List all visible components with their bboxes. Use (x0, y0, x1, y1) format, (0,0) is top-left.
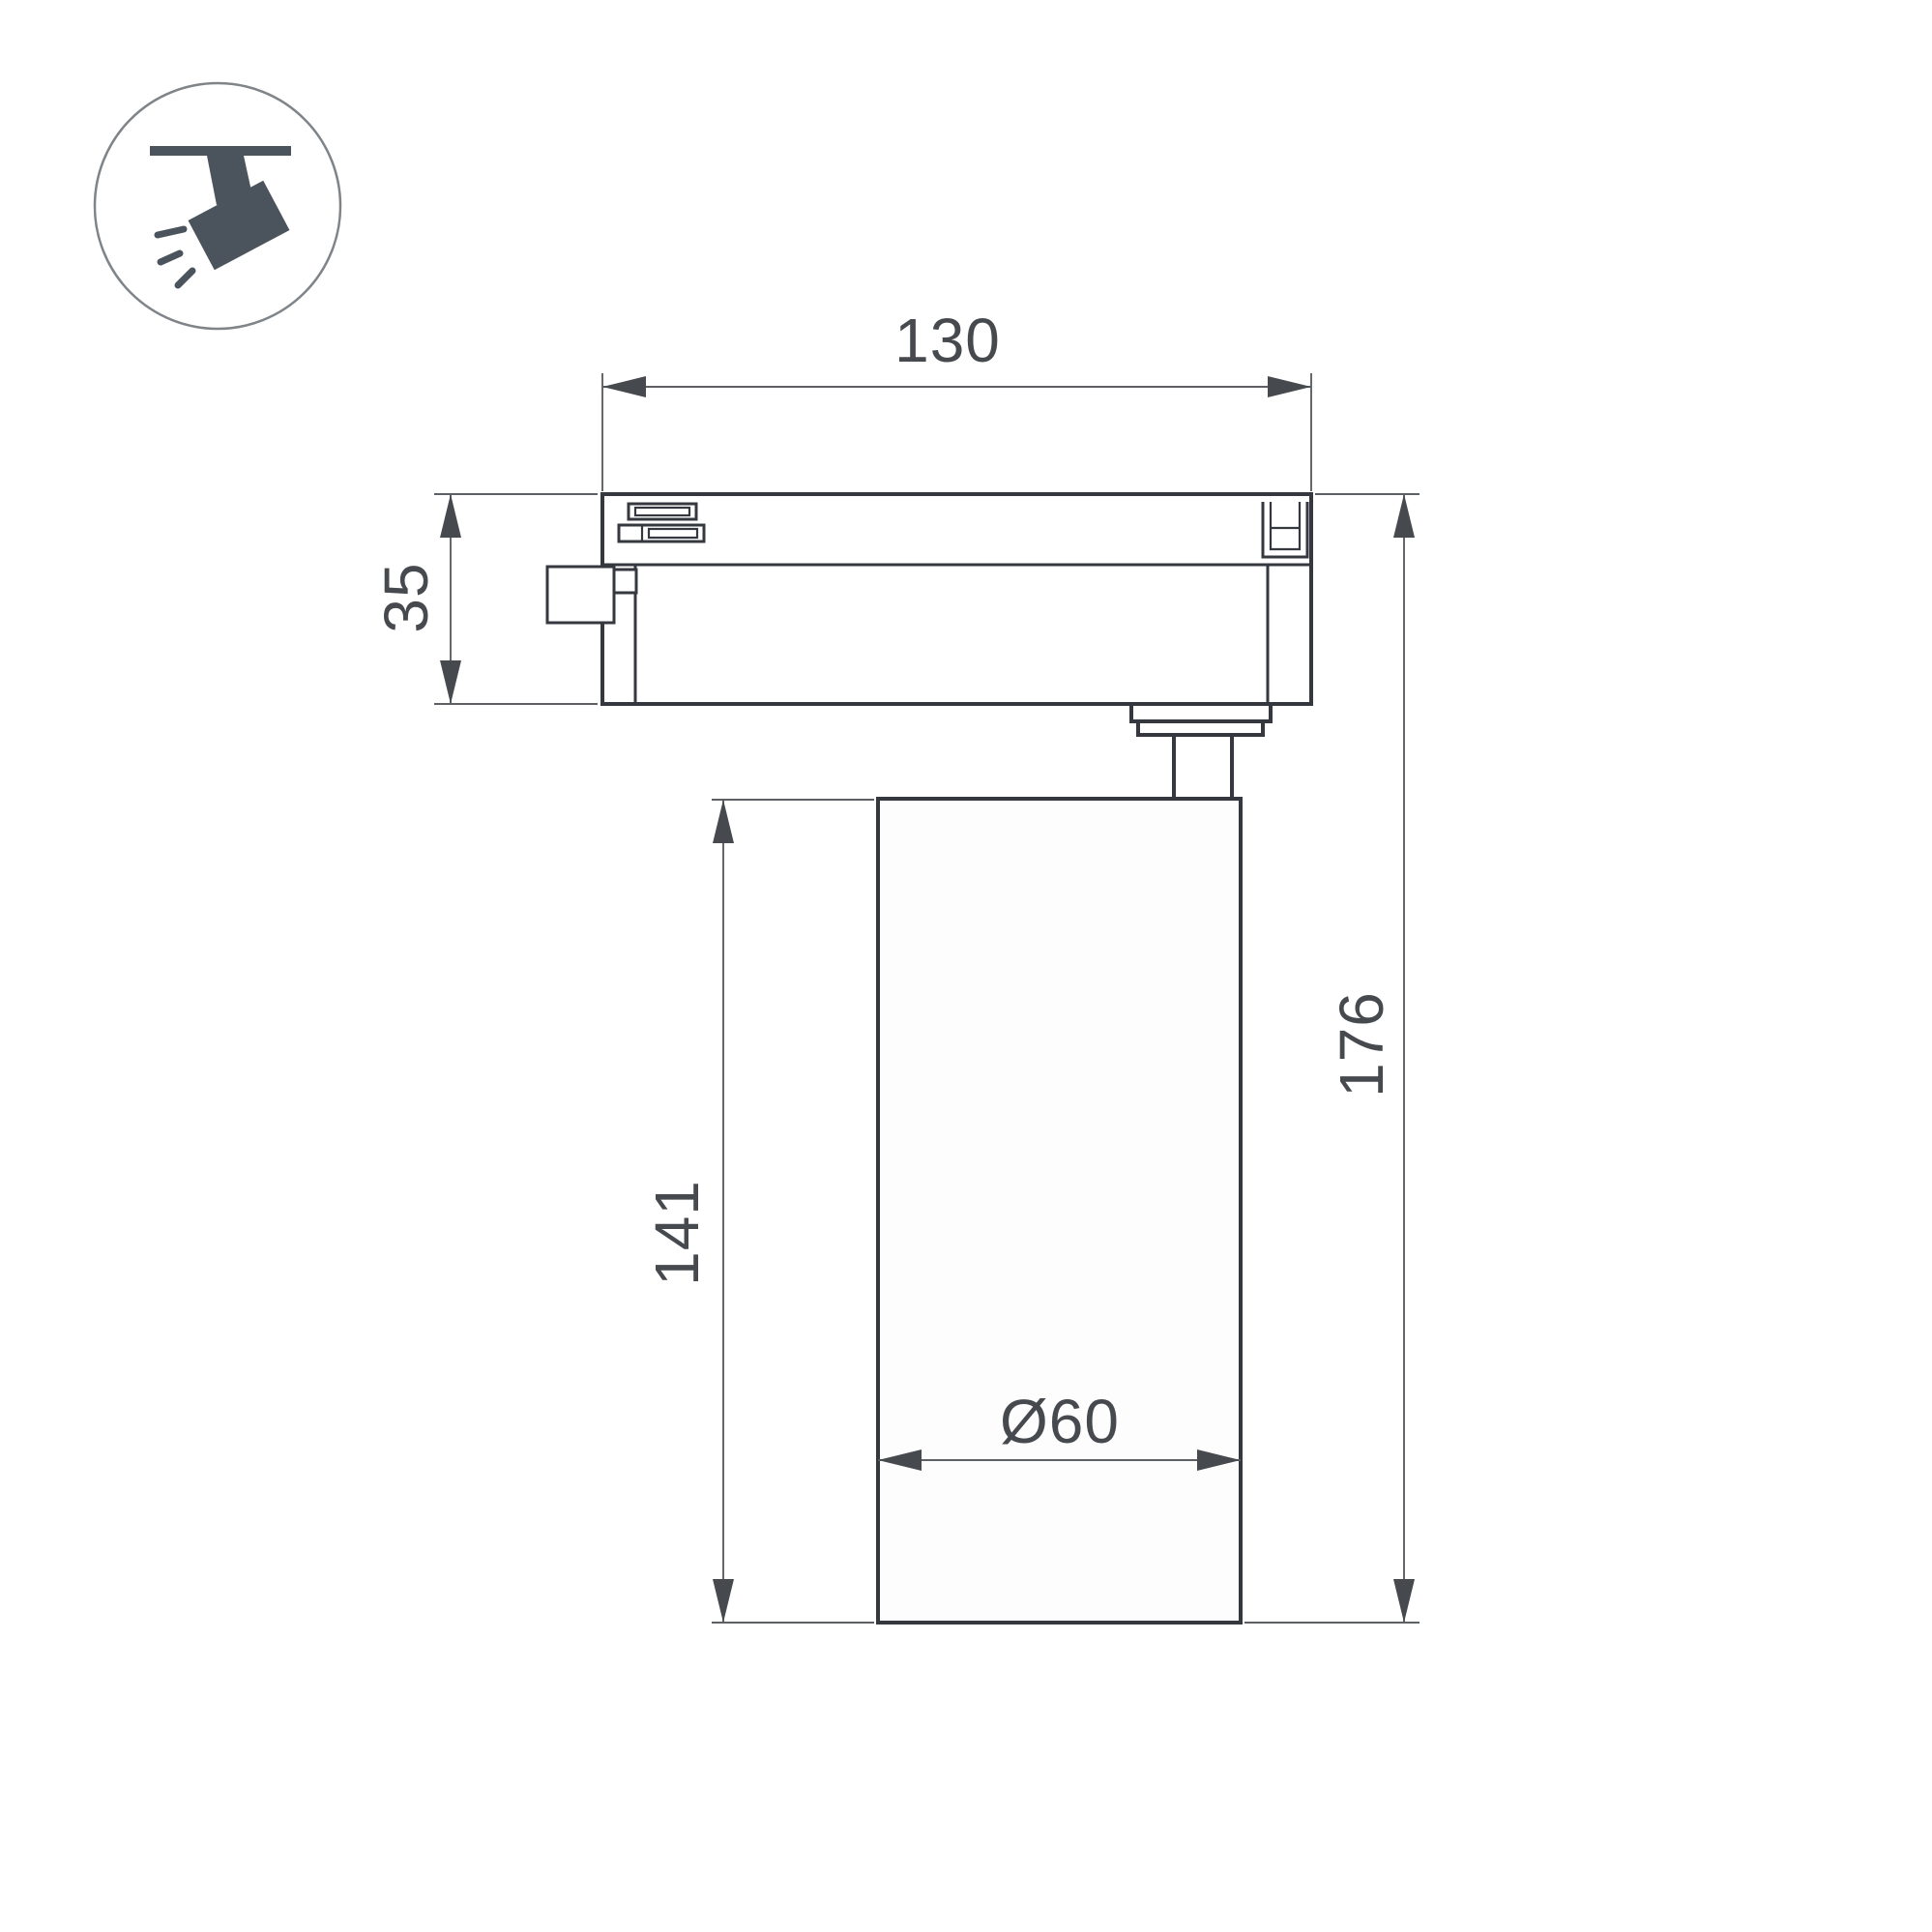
arrowhead-down (1393, 1579, 1415, 1623)
lock-lever-step (614, 570, 636, 593)
arrowhead-down (713, 1579, 734, 1623)
arrowhead-down (440, 660, 461, 704)
dim-lamp-height-label: 141 (642, 1180, 712, 1286)
dim-adapter-height-label: 35 (371, 562, 441, 632)
dim-lamp-diameter-label: Ø60 (1000, 1387, 1120, 1456)
dim-total-height-label: 176 (1327, 991, 1396, 1098)
mounting-stem (1131, 704, 1271, 799)
track-adapter-outline (547, 494, 1311, 704)
arrowhead-left (602, 376, 646, 397)
lock-lever (547, 567, 614, 623)
arrowhead-up (440, 494, 461, 538)
dimension-drawing-canvas: 130 35 141 176 Ø60 (0, 0, 1932, 1932)
arrowhead-right (1268, 376, 1311, 397)
lamp-body (878, 799, 1241, 1623)
adapter-body (602, 494, 1311, 704)
icon-track-bar (150, 146, 291, 156)
arrowhead-up (1393, 494, 1415, 538)
dim-lamp-height: 141 (642, 800, 874, 1623)
dim-track-width: 130 (602, 306, 1311, 491)
arrowhead-up (713, 800, 734, 843)
lamp-body-outline (878, 799, 1241, 1623)
dim-track-width-label: 130 (894, 306, 1001, 375)
track-spotlight-icon (95, 83, 340, 329)
flange-upper (1131, 704, 1271, 721)
flange-lower (1138, 721, 1263, 735)
